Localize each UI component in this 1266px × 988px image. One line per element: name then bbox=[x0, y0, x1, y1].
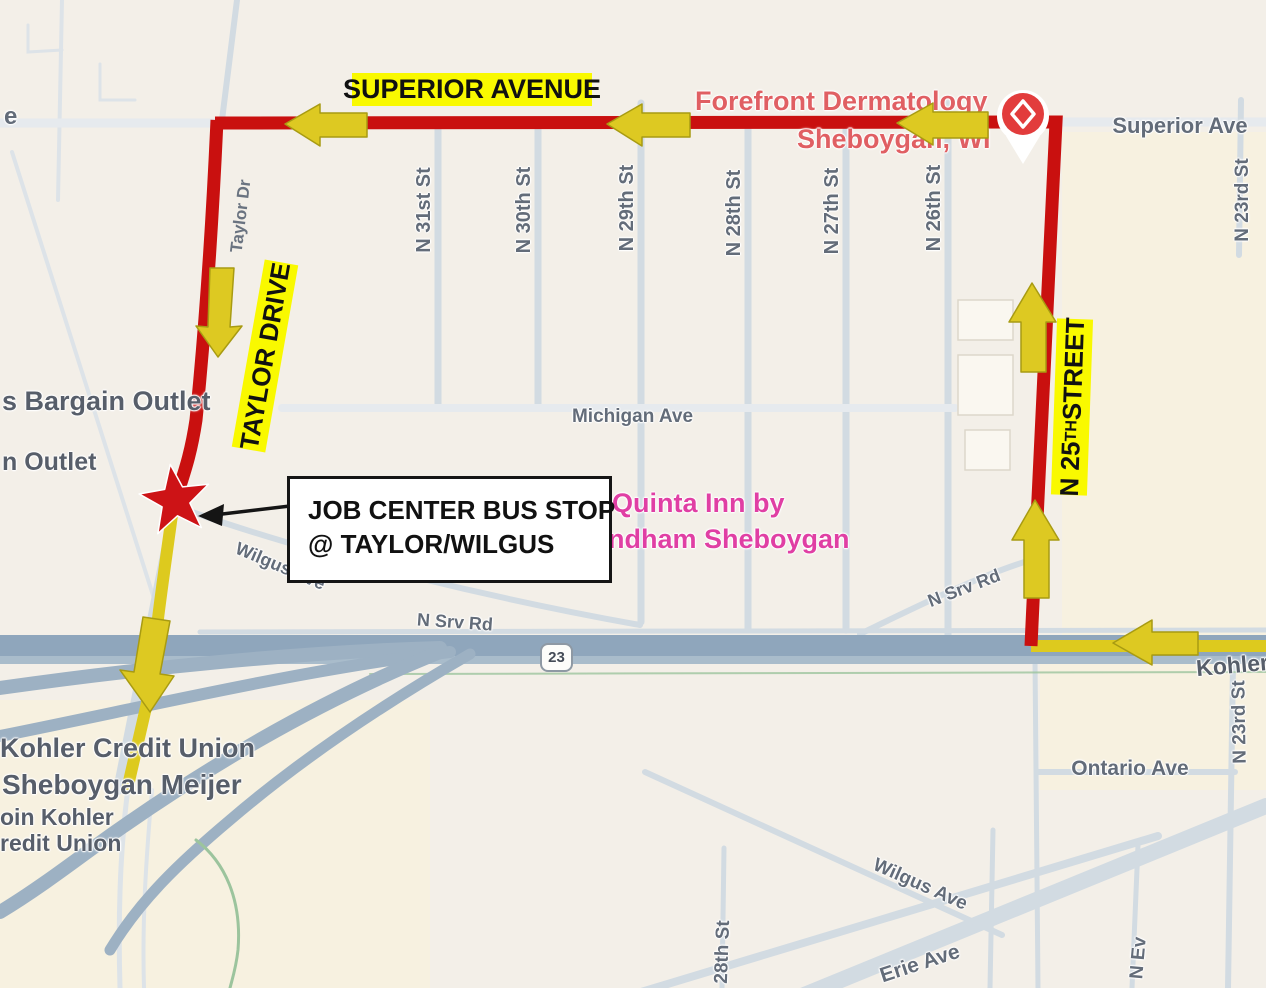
callout-line1: JOB CENTER BUS STOP bbox=[308, 493, 609, 527]
callout-line2: @ TAYLOR/WILGUS bbox=[308, 527, 609, 561]
highlight-label-taylor-drive: TAYLOR DRIVE bbox=[232, 259, 298, 452]
annotation-layer: SUPERIOR AVENUE TAYLOR DRIVE N 25TH STRE… bbox=[0, 0, 1266, 988]
route-map: Taylor Dr e Superior Ave N 23rd St N 31s… bbox=[0, 0, 1266, 988]
n25-prefix: N 25 bbox=[1053, 441, 1086, 497]
callout-box: JOB CENTER BUS STOP @ TAYLOR/WILGUS bbox=[287, 476, 612, 583]
highlight-label-superior-avenue: SUPERIOR AVENUE bbox=[352, 73, 592, 106]
n25-suffix: STREET bbox=[1056, 317, 1091, 421]
highlight-label-n-25th-street: N 25TH STREET bbox=[1051, 318, 1093, 495]
n25-sup: TH bbox=[1061, 420, 1081, 442]
